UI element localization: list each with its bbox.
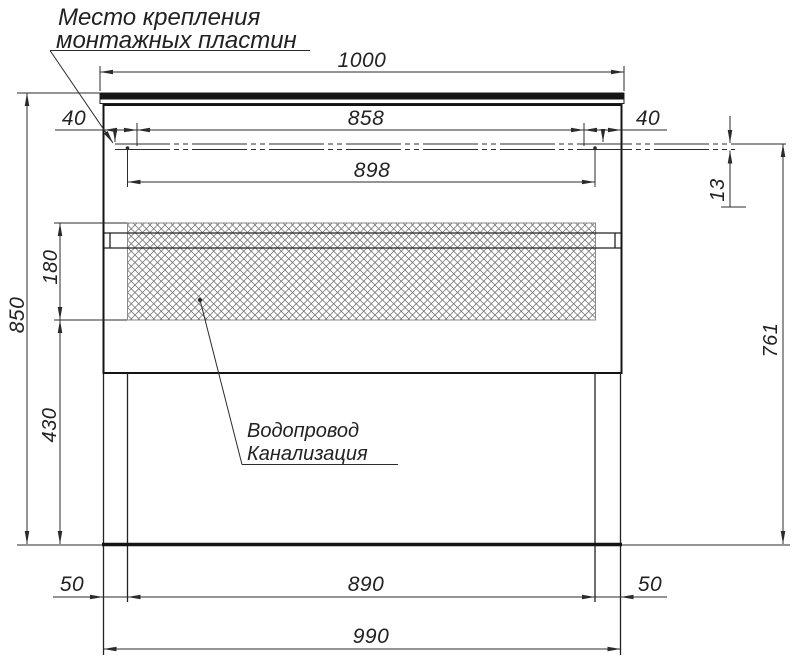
arrowhead <box>621 595 634 599</box>
dim-850-value: 850 <box>6 297 29 334</box>
dim-858-value: 858 <box>348 107 385 130</box>
dim-898-value: 898 <box>354 159 391 182</box>
dim-top-width-1000: 1000 <box>100 49 624 91</box>
technical-drawing: 1000 858 40 40 898 13 <box>0 0 792 659</box>
arrowhead <box>608 128 621 132</box>
dim-761-value: 761 <box>760 323 782 358</box>
mounting-plate-centerline <box>115 129 790 150</box>
drawing-canvas: 1000 858 40 40 898 13 <box>0 0 792 659</box>
dim-40-left-value: 40 <box>62 107 86 130</box>
utilities-label: Водопровод Канализация <box>198 298 398 465</box>
dim-50-right-value: 50 <box>638 573 662 596</box>
utilities-line1: Водопровод <box>247 420 359 442</box>
utility-hatch-area <box>128 223 596 320</box>
dim-leg-inset-right-50: 50 <box>595 573 667 599</box>
arrowhead <box>124 128 137 132</box>
dim-890-value: 890 <box>348 573 385 596</box>
utilities-line2: Канализация <box>247 443 368 465</box>
dim-13-value: 13 <box>707 178 729 201</box>
dim-180-value: 180 <box>40 250 62 285</box>
dim-990-value: 990 <box>353 625 390 648</box>
hatch-rect <box>128 223 596 320</box>
dim-430-value: 430 <box>39 408 61 443</box>
dim-plate-inner-858: 858 <box>137 107 584 146</box>
dim-1000-value: 1000 <box>338 49 387 72</box>
arrowhead <box>104 128 117 132</box>
dim-offset-right-40: 40 <box>584 107 667 132</box>
dim-bottom-inner-890: 890 <box>128 573 596 597</box>
countertop-slab <box>100 93 624 100</box>
arrowhead <box>584 128 597 132</box>
mounting-note-label: Место крепления монтажных пластин <box>50 4 310 143</box>
countertop <box>100 93 624 104</box>
leader-line <box>200 300 242 465</box>
legs <box>104 373 621 655</box>
dim-leg-inset-left-50: 50 <box>53 573 128 599</box>
dim-right-height-761: 761 <box>622 144 790 545</box>
dim-plate-height-13: 13 <box>707 116 746 207</box>
dim-40-right-value: 40 <box>636 107 660 130</box>
dim-zone-height-180: 180 <box>40 223 127 320</box>
arrowhead <box>90 595 103 599</box>
dim-bottom-width-990: 990 <box>104 625 621 649</box>
dim-overall-height-850: 850 <box>6 93 102 545</box>
mounting-note-line2: монтажных пластин <box>56 27 297 54</box>
dim-offset-left-40: 40 <box>55 107 137 132</box>
dim-50-left-value: 50 <box>60 573 84 596</box>
dim-zone-offset-430: 430 <box>39 320 61 544</box>
dim-plate-outer-898: 898 <box>126 146 597 187</box>
